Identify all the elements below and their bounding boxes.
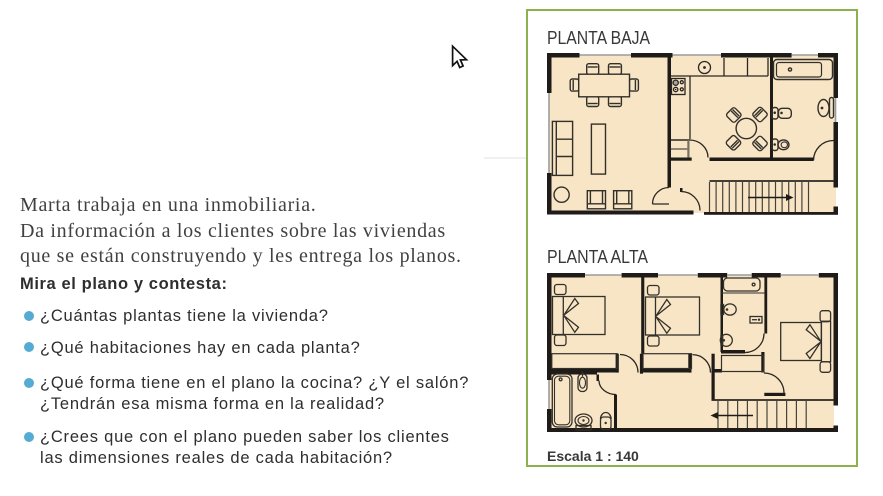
svg-text:PLANTA ALTA: PLANTA ALTA — [547, 247, 648, 267]
svg-text:PLANTA BAJA: PLANTA BAJA — [547, 28, 650, 48]
svg-text:Escala 1 : 140: Escala 1 : 140 — [547, 448, 639, 464]
